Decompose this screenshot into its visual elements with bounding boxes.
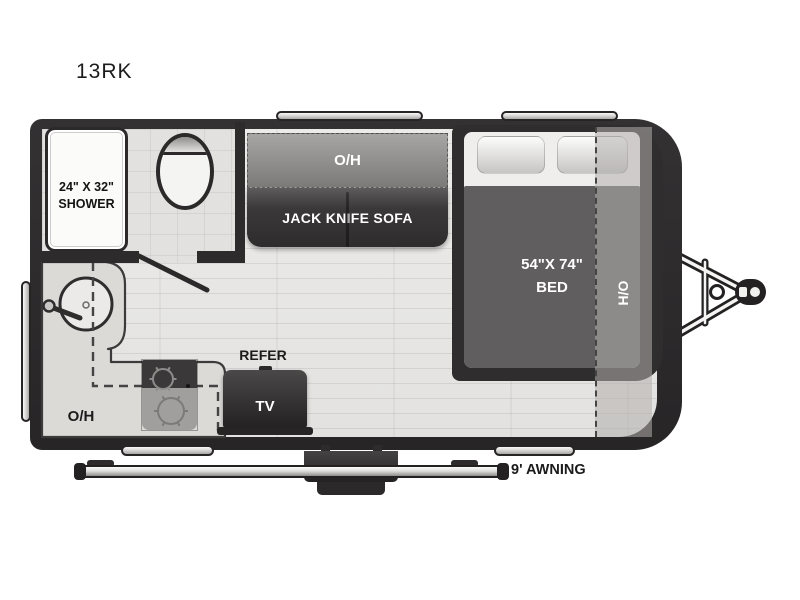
entry-step-lower <box>317 482 385 495</box>
kitchen-overhead-label: O/H <box>51 408 111 425</box>
sink <box>60 278 112 330</box>
jack-knife-sofa: JACK KNIFE SOFA <box>247 188 448 247</box>
tv-base <box>217 427 313 435</box>
stove-knob-icon <box>186 384 190 388</box>
bed-side-overhead-label: H/O <box>601 271 645 315</box>
burner-icons <box>142 360 197 430</box>
burner-icon-top <box>150 367 177 390</box>
window-trim-right <box>494 445 575 456</box>
bathroom-wall-right <box>235 122 245 263</box>
shower-size-label: 24" X 32" <box>59 179 114 196</box>
awning-label: 9' AWNING <box>511 462 586 478</box>
awning-cap-right <box>497 463 509 480</box>
rear-bumper <box>21 281 31 422</box>
tv-label: TV <box>255 398 274 415</box>
floorplan-page: 13RK <box>0 0 800 600</box>
roof-vent-left <box>276 111 423 121</box>
page-title: 13RK <box>76 60 133 84</box>
faucet-icon <box>44 301 55 312</box>
roof-vent-right <box>501 111 618 121</box>
pillow-left <box>477 136 545 174</box>
window-trim-left <box>121 445 214 456</box>
tv-unit: TV <box>223 370 307 428</box>
bathroom-wall-bottom-left <box>42 251 139 263</box>
burner-icon-bottom <box>154 396 188 425</box>
sofa-overhead-cabinet: O/H <box>247 133 448 188</box>
sofa-overhead-label: O/H <box>334 152 361 169</box>
bathroom-wall-bottom-right <box>197 251 245 263</box>
toilet <box>156 133 214 210</box>
awning-rail <box>79 465 505 478</box>
refrigerator-label: REFER <box>228 347 298 363</box>
awning-cap-left <box>74 463 86 480</box>
shower: 24" X 32" SHOWER <box>45 127 128 252</box>
stove <box>142 360 197 430</box>
shower-label: SHOWER <box>58 196 114 213</box>
sofa-cushion-split <box>346 192 349 247</box>
